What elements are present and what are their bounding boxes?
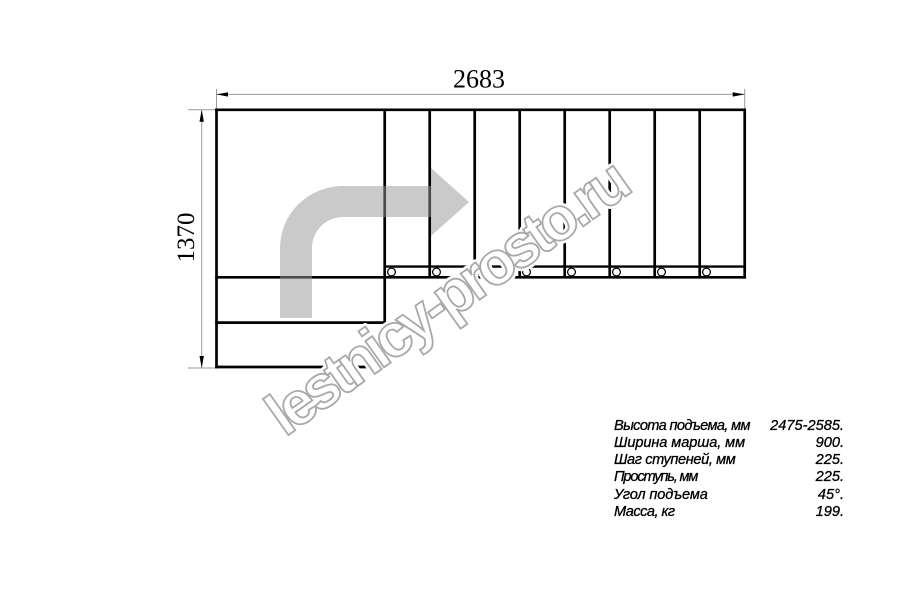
svg-text:1370: 1370	[173, 213, 200, 263]
svg-text:2683: 2683	[453, 65, 505, 94]
